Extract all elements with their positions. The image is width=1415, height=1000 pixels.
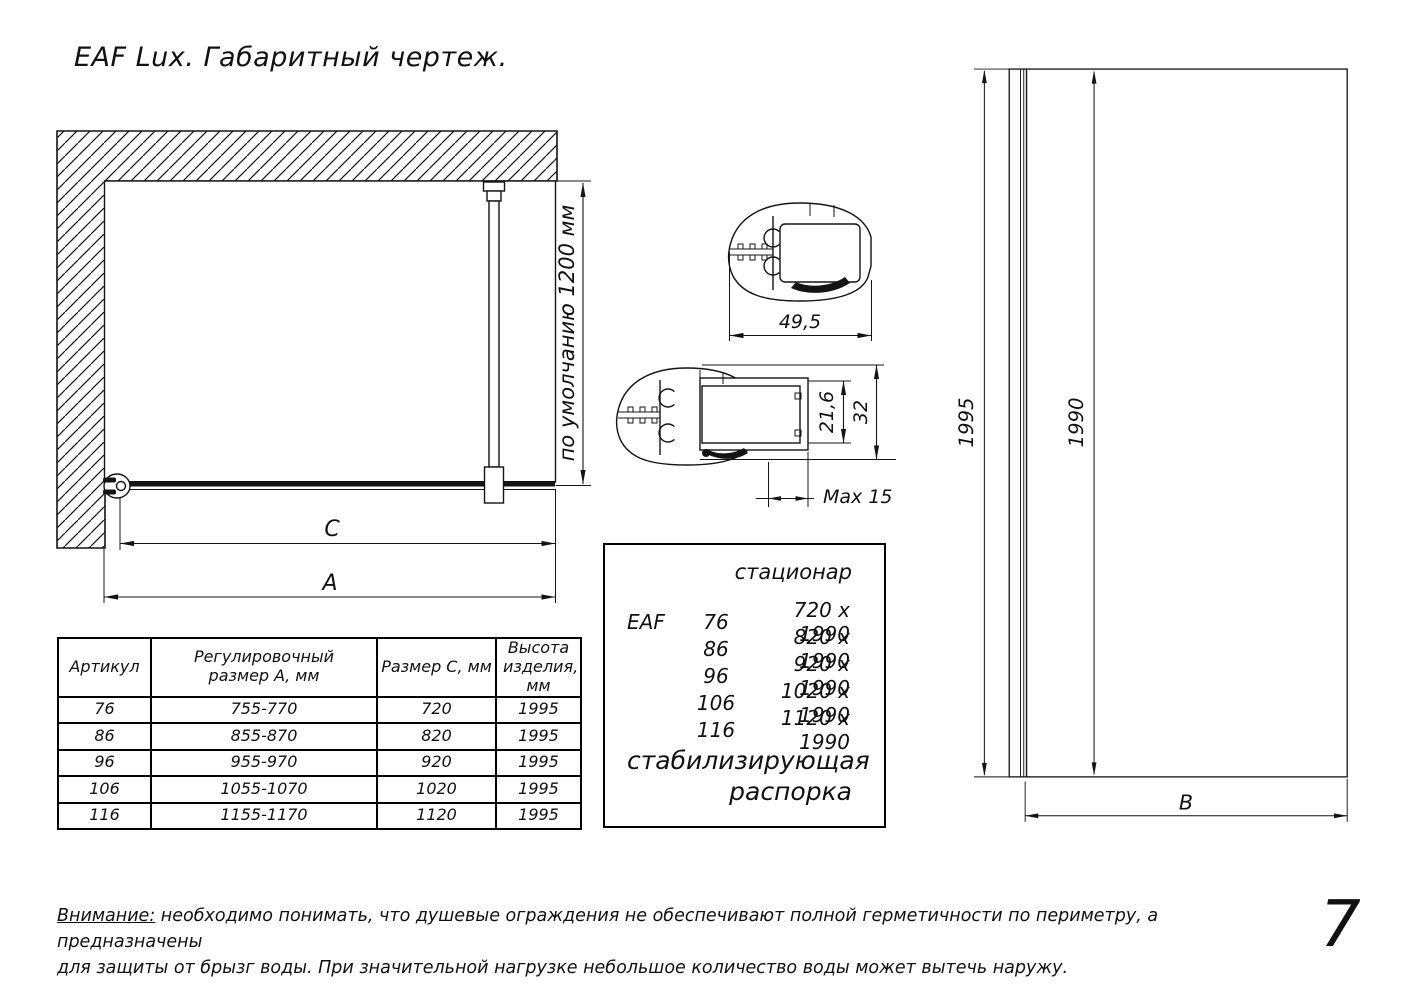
table-cell: 1995 [496,750,581,777]
series-label: EAF [627,610,689,634]
table-row: 76 755-770 720 1995 [58,697,581,724]
dim-label-1200: по умолчанию 1200 мм [555,205,579,462]
table-cell: 1995 [496,803,581,830]
plan-view-drawing: по умолчанию 1200 мм C A [40,115,620,625]
dim-label-glass-depth: 21,6 [816,391,838,433]
table-row: 86 855-870 820 1995 [58,723,581,750]
dim-label-width: 49,5 [779,311,821,333]
wall-profile-section: 49,5 [729,203,872,341]
table-cell: 1055-1070 [151,776,377,803]
page-number: 7 [1320,888,1361,962]
table-row: 96 955-970 920 1995 [58,750,581,777]
table-cell: 96 [58,750,151,777]
drawing-sheet: EAF Lux. Габаритный чертеж. [0,0,1415,1000]
table-cell: 86 [58,723,151,750]
table-row: 116 1155-1170 1120 1995 [58,803,581,830]
dim-label-1990: 1990 [1065,397,1088,447]
col-header: Артикул [58,638,151,697]
page-title: EAF Lux. Габаритный чертеж. [74,42,508,73]
dim-label-profile-height: 32 [850,400,872,424]
table-cell: 955-970 [151,750,377,777]
spec-box: стационар EAF 76 720 x 1990 86 820 x 199… [603,543,886,828]
table-cell: 1155-1170 [151,803,377,830]
table-cell: 720 [377,697,496,724]
dim-stabilizer-length: по умолчанию 1200 мм [555,181,591,486]
warning-label: Внимание: [57,906,155,926]
wall-bracket [103,474,130,498]
profile-sections-drawing: 49,5 21,6 [605,195,905,515]
table-cell: 1995 [496,776,581,803]
strut-label: стабилизирующая распорка [627,745,852,807]
dim-label-c: C [324,517,340,542]
dim-a: A [104,549,556,603]
size-table: Артикул Регулировочный размер А, мм Разм… [57,637,582,830]
glass-panel [105,181,556,482]
dim-label-max-adjust: Max 15 [823,486,893,508]
spec-type-label: стационар [627,560,852,584]
table-cell: 755-770 [151,697,377,724]
table-cell: 1120 [377,803,496,830]
col-header: Высота изделия, мм [496,638,581,697]
front-view-drawing: 1995 1990 B [940,55,1370,880]
dim-label-a: A [320,571,337,596]
table-cell: 820 [377,723,496,750]
col-header: Регулировочный размер А, мм [151,638,377,697]
col-header: Размер С, мм [377,638,496,697]
glass-holder-section: 21,6 32 Max 15 [617,365,896,508]
spec-row: EAF 76 720 x 1990 [627,598,852,625]
dim-label-1995: 1995 [955,397,978,447]
table-cell: 855-870 [151,723,377,750]
table-cell: 76 [58,697,151,724]
dim-label-b: B [1179,791,1193,815]
table-row: 106 1055-1070 1020 1995 [58,776,581,803]
table-cell: 1995 [496,723,581,750]
table-cell: 1020 [377,776,496,803]
dim-b: B [1025,779,1347,822]
table-header-row: Артикул Регулировочный размер А, мм Разм… [58,638,581,697]
table-cell: 106 [58,776,151,803]
table-cell: 1995 [496,697,581,724]
table-cell: 920 [377,750,496,777]
dim-total-height: 1995 [955,69,1009,777]
dim-c: C [120,489,556,603]
warning-note: Внимание: необходимо понимать, что душев… [57,903,1272,981]
table-cell: 116 [58,803,151,830]
